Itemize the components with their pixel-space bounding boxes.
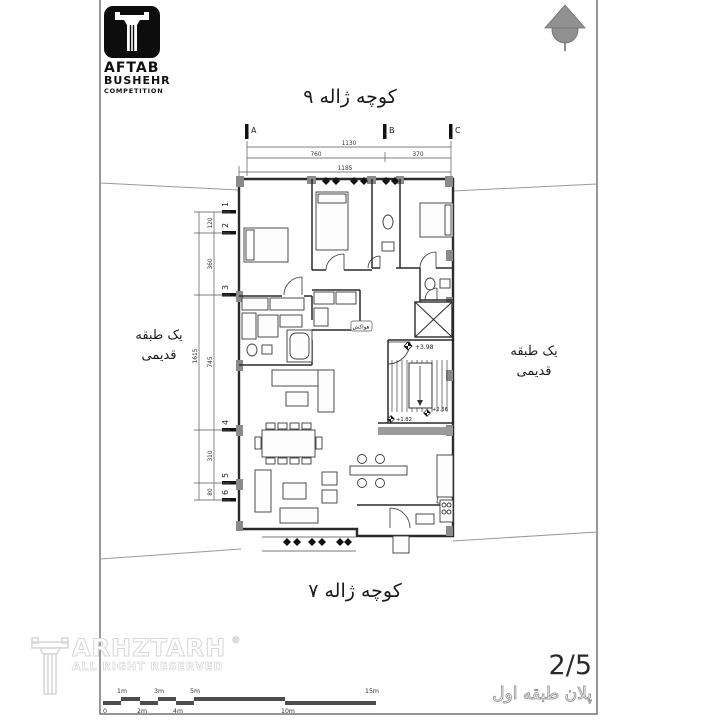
scale-15m: 15m bbox=[365, 688, 379, 695]
drawing-sheet: A B C 1130 760 370 1185 1 bbox=[0, 0, 720, 720]
building: هواکش +3.98 +2.36 +1.82 bbox=[236, 176, 453, 553]
toilet-1 bbox=[383, 215, 393, 229]
dim-left-seg2: 360 bbox=[208, 258, 214, 269]
grid-rows: 1 2 3 4 5 6 bbox=[221, 202, 236, 502]
dim-left-seg5: 80 bbox=[208, 488, 214, 496]
duct-label-text: هواکش bbox=[353, 324, 370, 331]
bed-2 bbox=[316, 192, 348, 250]
neighbor-label-right: یک طبقه قدیمی bbox=[488, 342, 580, 382]
bed-3 bbox=[420, 203, 453, 237]
watermark-rights: ALL RIGHT RESERVED bbox=[72, 660, 240, 673]
sheet-title: پلان طبقه اول bbox=[440, 684, 592, 704]
column-icon bbox=[104, 6, 160, 58]
logo-tagline: COMPETITION bbox=[104, 87, 176, 95]
grid-row-1: 1 bbox=[221, 202, 230, 207]
dim-left-seg1: 120 bbox=[208, 217, 214, 228]
logo-mark bbox=[104, 6, 160, 58]
dim-top-left: 760 bbox=[310, 152, 321, 158]
bidet bbox=[262, 345, 272, 354]
grid-row-4: 4 bbox=[221, 420, 230, 425]
watermark-column-icon bbox=[30, 636, 70, 698]
grid-col-a: A bbox=[251, 126, 257, 135]
elevator bbox=[415, 302, 452, 337]
neighbor-right-line1: یک طبقه bbox=[488, 342, 580, 362]
bathtub bbox=[287, 330, 312, 362]
bed-1 bbox=[244, 228, 288, 262]
watermark-brand: ARHZTARH bbox=[72, 634, 226, 662]
neighbor-left-line2: قدیمی bbox=[116, 346, 202, 366]
scale-bar-segments bbox=[103, 697, 376, 705]
scale-10m: 10m bbox=[281, 708, 295, 715]
floor-plan-canvas: A B C 1130 760 370 1185 1 bbox=[0, 0, 720, 720]
scale-0: 0 bbox=[103, 708, 107, 715]
grid-columns: A B C bbox=[245, 124, 461, 139]
sheet-number: 2/5 bbox=[470, 650, 592, 681]
competition-logo: AFTAB BUSHEHR COMPETITION bbox=[104, 6, 176, 95]
neighbor-label-left: یک طبقه قدیمی bbox=[116, 326, 202, 366]
grid-col-b: B bbox=[389, 126, 395, 135]
dim-left-seg4: 310 bbox=[208, 450, 214, 461]
dim-top-right: 370 bbox=[412, 152, 423, 158]
grid-col-c: C bbox=[455, 126, 461, 135]
grid-row-2: 2 bbox=[221, 223, 230, 228]
street-label-top: کوچه ژاله ۹ bbox=[230, 86, 470, 108]
dim-top-outer: 1185 bbox=[338, 166, 353, 172]
grid-row-6: 6 bbox=[221, 490, 230, 495]
registered-icon: ® bbox=[231, 636, 240, 646]
north-arrow-icon bbox=[545, 5, 585, 51]
street-label-bottom: کوچه ژاله ۷ bbox=[235, 580, 475, 602]
logo-subtitle: BUSHEHR bbox=[104, 75, 176, 87]
grid-row-3: 3 bbox=[221, 285, 230, 290]
neighbor-left-line1: یک طبقه bbox=[116, 326, 202, 346]
toilet-3 bbox=[247, 344, 257, 356]
top-dimension-texts: 1130 760 370 1185 bbox=[310, 141, 423, 172]
dim-left-seg3: 745 bbox=[208, 356, 214, 367]
toilet-2 bbox=[425, 278, 435, 290]
scale-2m: 2m bbox=[137, 708, 147, 715]
level-236: +2.36 bbox=[432, 407, 448, 413]
entry-stoop bbox=[393, 536, 409, 553]
neighbor-right-line2: قدیمی bbox=[488, 362, 580, 382]
sink-1 bbox=[382, 242, 394, 251]
grid-row-5: 5 bbox=[221, 473, 230, 478]
sink-2 bbox=[440, 279, 450, 288]
dim-top-total: 1130 bbox=[342, 141, 357, 147]
duct-label: هواکش bbox=[351, 321, 372, 331]
logo-title: AFTAB bbox=[104, 61, 176, 75]
level-182: +1.82 bbox=[396, 417, 412, 423]
scale-4m: 4m bbox=[173, 708, 183, 715]
watermark: ARHZTARH ® ALL RIGHT RESERVED bbox=[30, 636, 260, 698]
level-398: +3.98 bbox=[415, 344, 434, 351]
stair-wall bbox=[378, 427, 453, 435]
